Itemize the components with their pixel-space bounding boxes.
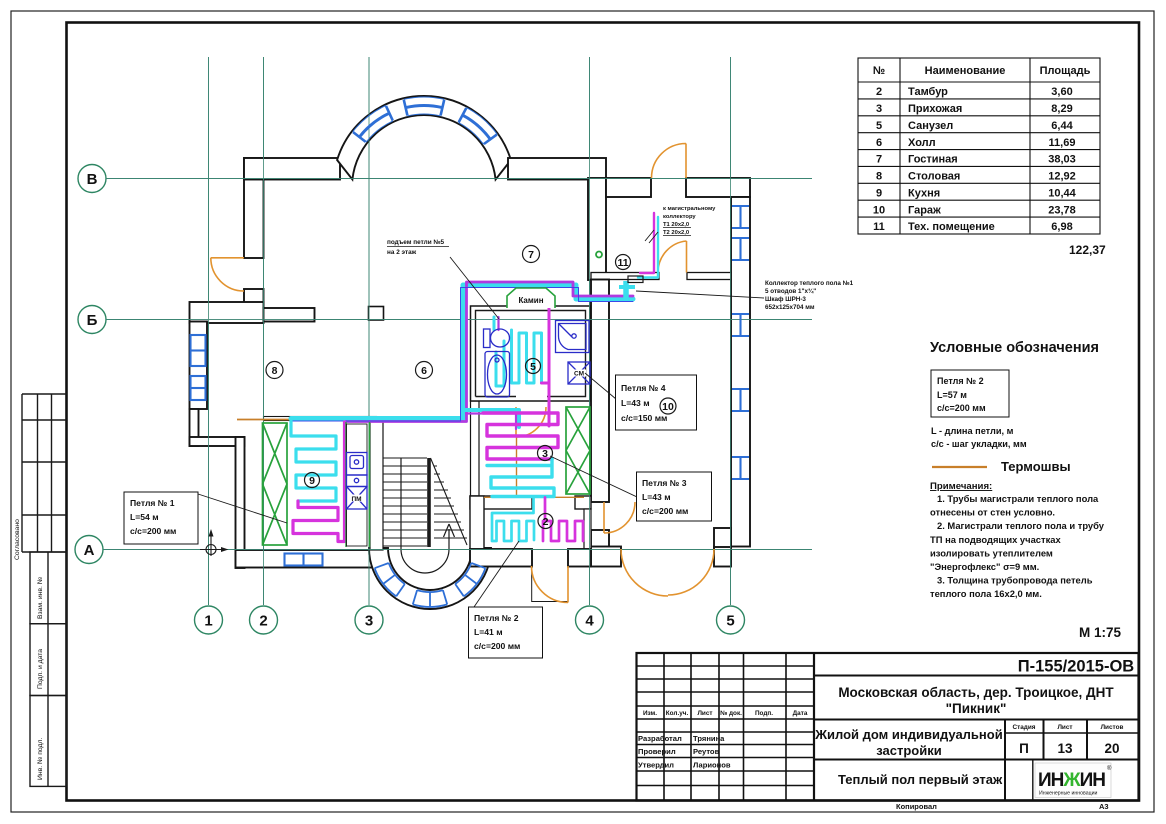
svg-text:23,78: 23,78 xyxy=(1048,205,1076,217)
svg-text:Шкаф ШРН-3: Шкаф ШРН-3 xyxy=(765,296,806,303)
svg-text:11: 11 xyxy=(617,257,628,269)
svg-text:Согласовано: Согласовано xyxy=(14,519,21,560)
svg-text:Столовая: Столовая xyxy=(908,171,960,183)
svg-text:к магистральному: к магистральному xyxy=(663,206,716,212)
svg-text:А: А xyxy=(84,542,95,559)
svg-text:Подп.: Подп. xyxy=(755,710,773,717)
svg-text:4: 4 xyxy=(585,613,594,630)
svg-text:с/с=200 мм: с/с=200 мм xyxy=(474,641,520,651)
svg-text:Реутов: Реутов xyxy=(693,747,720,756)
svg-text:Подп. и дата: Подп. и дата xyxy=(37,649,44,689)
svg-text:3: 3 xyxy=(365,613,373,630)
svg-text:на 2 этаж: на 2 этаж xyxy=(387,249,417,256)
svg-text:Проверил: Проверил xyxy=(638,747,676,756)
svg-text:2: 2 xyxy=(543,516,549,528)
svg-text:Прихожая: Прихожая xyxy=(908,103,962,115)
svg-text:Условные обозначения: Условные обозначения xyxy=(930,340,1099,356)
svg-text:Гараж: Гараж xyxy=(908,205,941,217)
svg-text:П: П xyxy=(1019,741,1029,756)
svg-text:Кухня: Кухня xyxy=(908,188,940,200)
svg-text:Тех. помещение: Тех. помещение xyxy=(908,221,995,233)
svg-text:Б: Б xyxy=(87,312,98,329)
svg-text:9: 9 xyxy=(876,188,882,200)
svg-text:L=43 м: L=43 м xyxy=(642,492,671,502)
svg-text:Ларионов: Ларионов xyxy=(693,761,731,770)
svg-text:L=43 м: L=43 м xyxy=(621,398,650,408)
svg-text:3: 3 xyxy=(876,103,882,115)
svg-text:№ док.: № док. xyxy=(720,710,742,717)
svg-text:3: 3 xyxy=(542,448,548,460)
svg-text:11,69: 11,69 xyxy=(1049,137,1076,149)
svg-text:Изм.: Изм. xyxy=(643,710,657,717)
svg-text:10,44: 10,44 xyxy=(1048,188,1076,200)
svg-text:Теплый пол первый этаж: Теплый пол первый этаж xyxy=(838,772,1003,787)
svg-text:Санузел: Санузел xyxy=(908,120,953,132)
svg-text:Взам. инв. №: Взам. инв. № xyxy=(37,577,44,619)
svg-text:2: 2 xyxy=(876,86,882,98)
svg-text:Термошвы: Термошвы xyxy=(1001,459,1071,474)
svg-text:3. Толщина трубопровода петель: 3. Толщина трубопровода петель xyxy=(937,575,1093,586)
svg-text:9: 9 xyxy=(309,475,315,487)
svg-text:1. Трубы магистрали теплого по: 1. Трубы магистрали теплого пола xyxy=(937,493,1099,504)
svg-text:10: 10 xyxy=(662,401,674,413)
svg-text:Наименование: Наименование xyxy=(925,65,1006,77)
svg-text:2: 2 xyxy=(259,613,267,630)
svg-text:Жилой дом индивидуальной: Жилой дом индивидуальной xyxy=(814,727,1002,742)
svg-text:ИНЖИН: ИНЖИН xyxy=(1038,770,1105,791)
svg-text:Инв. № подл.: Инв. № подл. xyxy=(37,738,44,780)
svg-text:Т2 20х2,0: Т2 20х2,0 xyxy=(663,230,689,236)
svg-text:А3: А3 xyxy=(1099,802,1109,811)
svg-text:ПМ: ПМ xyxy=(351,496,361,503)
svg-text:Утвердил: Утвердил xyxy=(638,761,674,770)
svg-text:М 1:75: М 1:75 xyxy=(1079,625,1122,640)
svg-text:20: 20 xyxy=(1104,741,1119,756)
svg-text:П-155/2015-ОВ: П-155/2015-ОВ xyxy=(1018,658,1135,676)
svg-text:®: ® xyxy=(1107,765,1112,772)
svg-text:с/с=200 мм: с/с=200 мм xyxy=(642,506,688,516)
svg-text:Инженерные инновации: Инженерные инновации xyxy=(1039,791,1097,797)
svg-text:подъем петли №5: подъем петли №5 xyxy=(387,239,445,246)
svg-text:5: 5 xyxy=(876,120,882,132)
svg-text:Петля № 2: Петля № 2 xyxy=(937,376,984,386)
svg-text:Московская область, дер. Троиц: Московская область, дер. Троицкое, ДНТ xyxy=(838,685,1114,700)
svg-text:11: 11 xyxy=(873,221,885,233)
svg-text:Копировал: Копировал xyxy=(896,802,937,811)
svg-text:6,44: 6,44 xyxy=(1051,120,1073,132)
svg-text:Трянина: Трянина xyxy=(693,734,725,743)
svg-text:Листов: Листов xyxy=(1101,724,1124,731)
svg-text:Петля № 2: Петля № 2 xyxy=(474,613,519,623)
svg-text:6: 6 xyxy=(421,365,427,377)
svg-text:Камин: Камин xyxy=(518,296,543,305)
svg-text:ТП на подводящих участках: ТП на подводящих участках xyxy=(930,534,1062,545)
svg-text:Примечания:: Примечания: xyxy=(930,481,992,492)
svg-text:Площадь: Площадь xyxy=(1040,65,1091,77)
svg-text:38,03: 38,03 xyxy=(1048,154,1076,166)
svg-text:652х125х704 мм: 652х125х704 мм xyxy=(765,304,815,311)
svg-text:В: В xyxy=(87,171,98,188)
svg-text:коллектору: коллектору xyxy=(663,214,696,220)
svg-text:Гостиная: Гостиная xyxy=(908,154,958,166)
svg-text:Лист: Лист xyxy=(1057,724,1072,731)
svg-text:L=41 м: L=41 м xyxy=(474,627,503,637)
svg-text:L=54 м: L=54 м xyxy=(130,512,159,522)
svg-text:Т1 20х2,0: Т1 20х2,0 xyxy=(663,222,689,228)
svg-text:Коллектор теплого пола №1: Коллектор теплого пола №1 xyxy=(765,280,854,287)
svg-text:L - длина петли, м: L - длина петли, м xyxy=(931,426,1014,436)
svg-text:с/с=150 мм: с/с=150 мм xyxy=(621,413,667,423)
svg-text:5: 5 xyxy=(530,361,536,373)
svg-text:122,37: 122,37 xyxy=(1069,243,1106,257)
svg-text:Лист: Лист xyxy=(697,710,712,717)
svg-text:с/с - шаг укладки, мм: с/с - шаг укладки, мм xyxy=(931,439,1027,449)
svg-text:изолировать утеплителем: изолировать утеплителем xyxy=(930,548,1053,559)
svg-text:отнесены от стен условно.: отнесены от стен условно. xyxy=(930,507,1055,518)
svg-text:8: 8 xyxy=(272,365,278,377)
svg-text:"Пикник": "Пикник" xyxy=(946,701,1007,716)
svg-text:"Энергофлекс" σ=9 мм.: "Энергофлекс" σ=9 мм. xyxy=(930,561,1039,572)
svg-text:L=57 м: L=57 м xyxy=(937,390,967,400)
svg-text:Петля № 4: Петля № 4 xyxy=(621,383,666,393)
svg-text:Холл: Холл xyxy=(908,137,936,149)
svg-text:10: 10 xyxy=(873,205,885,217)
svg-text:№: № xyxy=(873,65,885,77)
svg-text:Дата: Дата xyxy=(793,710,808,717)
svg-text:5: 5 xyxy=(726,613,734,630)
svg-text:5 отводов 1"х¾": 5 отводов 1"х¾" xyxy=(765,287,816,295)
svg-text:с/с=200 мм: с/с=200 мм xyxy=(937,403,986,413)
svg-text:2. Магистрали теплого пола и т: 2. Магистрали теплого пола и трубу xyxy=(937,520,1105,531)
svg-text:6,98: 6,98 xyxy=(1051,221,1072,233)
svg-text:СМ: СМ xyxy=(574,371,584,378)
svg-text:7: 7 xyxy=(528,249,534,261)
svg-text:3,60: 3,60 xyxy=(1051,86,1072,98)
svg-text:8: 8 xyxy=(876,171,882,183)
svg-text:теплого пола 16х2,0 мм.: теплого пола 16х2,0 мм. xyxy=(930,588,1042,599)
svg-text:застройки: застройки xyxy=(876,743,942,758)
svg-text:13: 13 xyxy=(1057,741,1073,756)
svg-text:Петля № 1: Петля № 1 xyxy=(130,498,175,508)
svg-text:Петля № 3: Петля № 3 xyxy=(642,478,687,488)
svg-text:12,92: 12,92 xyxy=(1048,171,1076,183)
svg-text:с/с=200 мм: с/с=200 мм xyxy=(130,526,176,536)
svg-text:1: 1 xyxy=(204,613,212,630)
svg-text:Тамбур: Тамбур xyxy=(908,86,948,98)
svg-text:Стадия: Стадия xyxy=(1012,724,1035,731)
svg-text:7: 7 xyxy=(876,154,882,166)
svg-text:6: 6 xyxy=(876,137,882,149)
svg-text:Кол.уч.: Кол.уч. xyxy=(666,710,689,717)
svg-text:8,29: 8,29 xyxy=(1051,103,1072,115)
svg-text:Разработал: Разработал xyxy=(638,734,682,743)
